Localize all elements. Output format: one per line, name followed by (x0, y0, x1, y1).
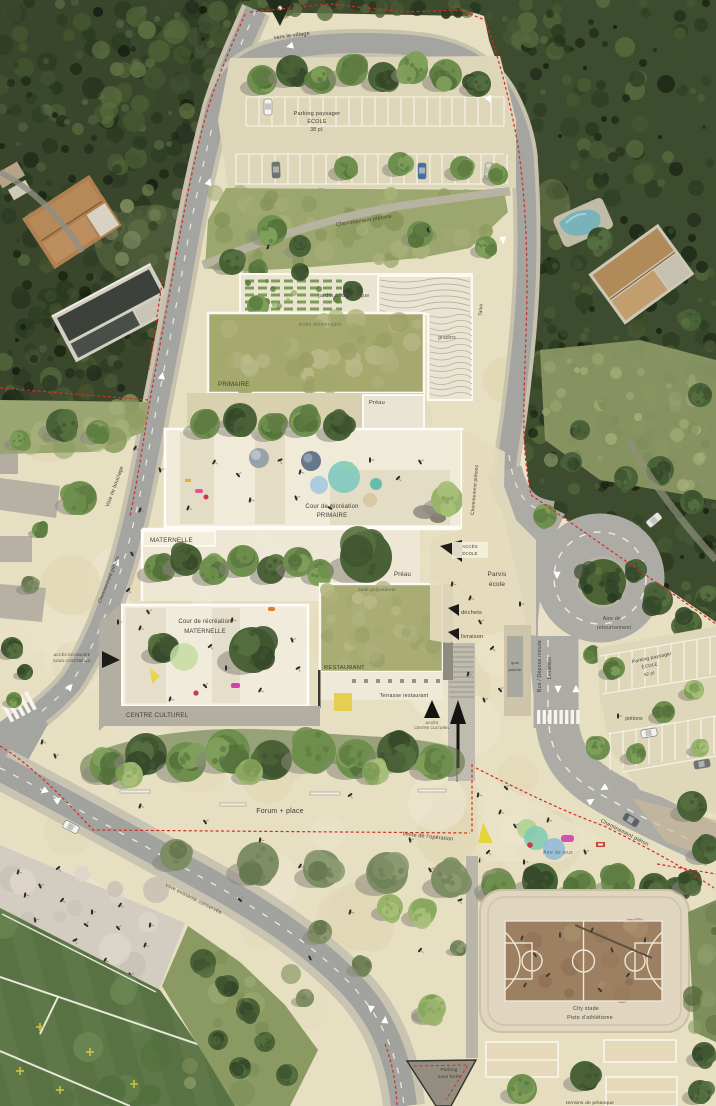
svg-text:Parking: Parking (441, 1067, 458, 1072)
svg-text:école élémentaire: école élémentaire (299, 322, 342, 328)
svg-text:MATERNELLE: MATERNELLE (184, 629, 226, 635)
svg-text:ÉCOLE: ÉCOLE (307, 118, 326, 125)
svg-text:SOUS COSTEBELLE: SOUS COSTEBELLE (53, 659, 91, 663)
svg-text:ACCÈS: ACCÈS (426, 720, 439, 725)
svg-text:Préau: Préau (394, 572, 411, 578)
svg-text:piétons: piétons (625, 716, 643, 722)
svg-text:PRIMAIRE: PRIMAIRE (317, 513, 348, 519)
svg-text:retournement: retournement (597, 625, 632, 631)
svg-text:Préau: Préau (369, 400, 385, 406)
svg-text:Aire de: Aire de (603, 616, 621, 622)
svg-text:MATERNELLE: MATERNELLE (150, 537, 193, 544)
svg-text:sous forêt: sous forêt (438, 1074, 461, 1079)
svg-text:Livraison: Livraison (547, 657, 553, 680)
svg-text:Forum + place: Forum + place (256, 808, 304, 815)
svg-text:Bus / Dépose minute: Bus / Dépose minute (537, 640, 543, 692)
svg-text:Terrasse restaurant: Terrasse restaurant (380, 693, 429, 699)
svg-text:Aire de jeux: Aire de jeux (543, 850, 573, 856)
svg-text:City stade: City stade (573, 1006, 599, 1012)
svg-text:Cour de récréation: Cour de récréation (178, 619, 231, 625)
svg-text:livraison: livraison (461, 634, 483, 640)
svg-text:CENTRE CULTUREL: CENTRE CULTUREL (414, 726, 450, 730)
svg-text:Piste d’athlétisme: Piste d’athlétisme (567, 1015, 613, 1021)
svg-text:PRIMAIRE: PRIMAIRE (218, 381, 250, 388)
svg-text:jardin pédagogique: jardin pédagogique (317, 293, 369, 299)
svg-text:38 pl.: 38 pl. (310, 127, 323, 133)
svg-text:déchets: déchets (461, 610, 482, 616)
svg-text:ÉCOLE: ÉCOLE (462, 551, 477, 556)
svg-text:palette: palette (509, 668, 522, 672)
svg-text:CENTRE CULTUREL: CENTRE CULTUREL (126, 712, 189, 719)
svg-text:quai: quai (511, 661, 519, 665)
svg-text:Parvis: Parvis (488, 571, 507, 578)
svg-text:école: école (489, 581, 506, 588)
svg-text:ACCÈS: ACCÈS (462, 544, 477, 549)
svg-text:Cour de récréation: Cour de récréation (305, 504, 358, 510)
svg-text:salle polyvalente: salle polyvalente (358, 587, 396, 592)
svg-text:gradins: gradins (438, 335, 456, 341)
svg-text:Talus: Talus (477, 303, 484, 316)
svg-text:terrains de pétanque: terrains de pétanque (566, 1100, 614, 1106)
svg-text:RESTAURANT: RESTAURANT (324, 665, 365, 671)
svg-text:Parking paysager: Parking paysager (294, 111, 341, 117)
svg-text:ACCÈS ÉCOMUSÉE: ACCÈS ÉCOMUSÉE (54, 652, 91, 657)
